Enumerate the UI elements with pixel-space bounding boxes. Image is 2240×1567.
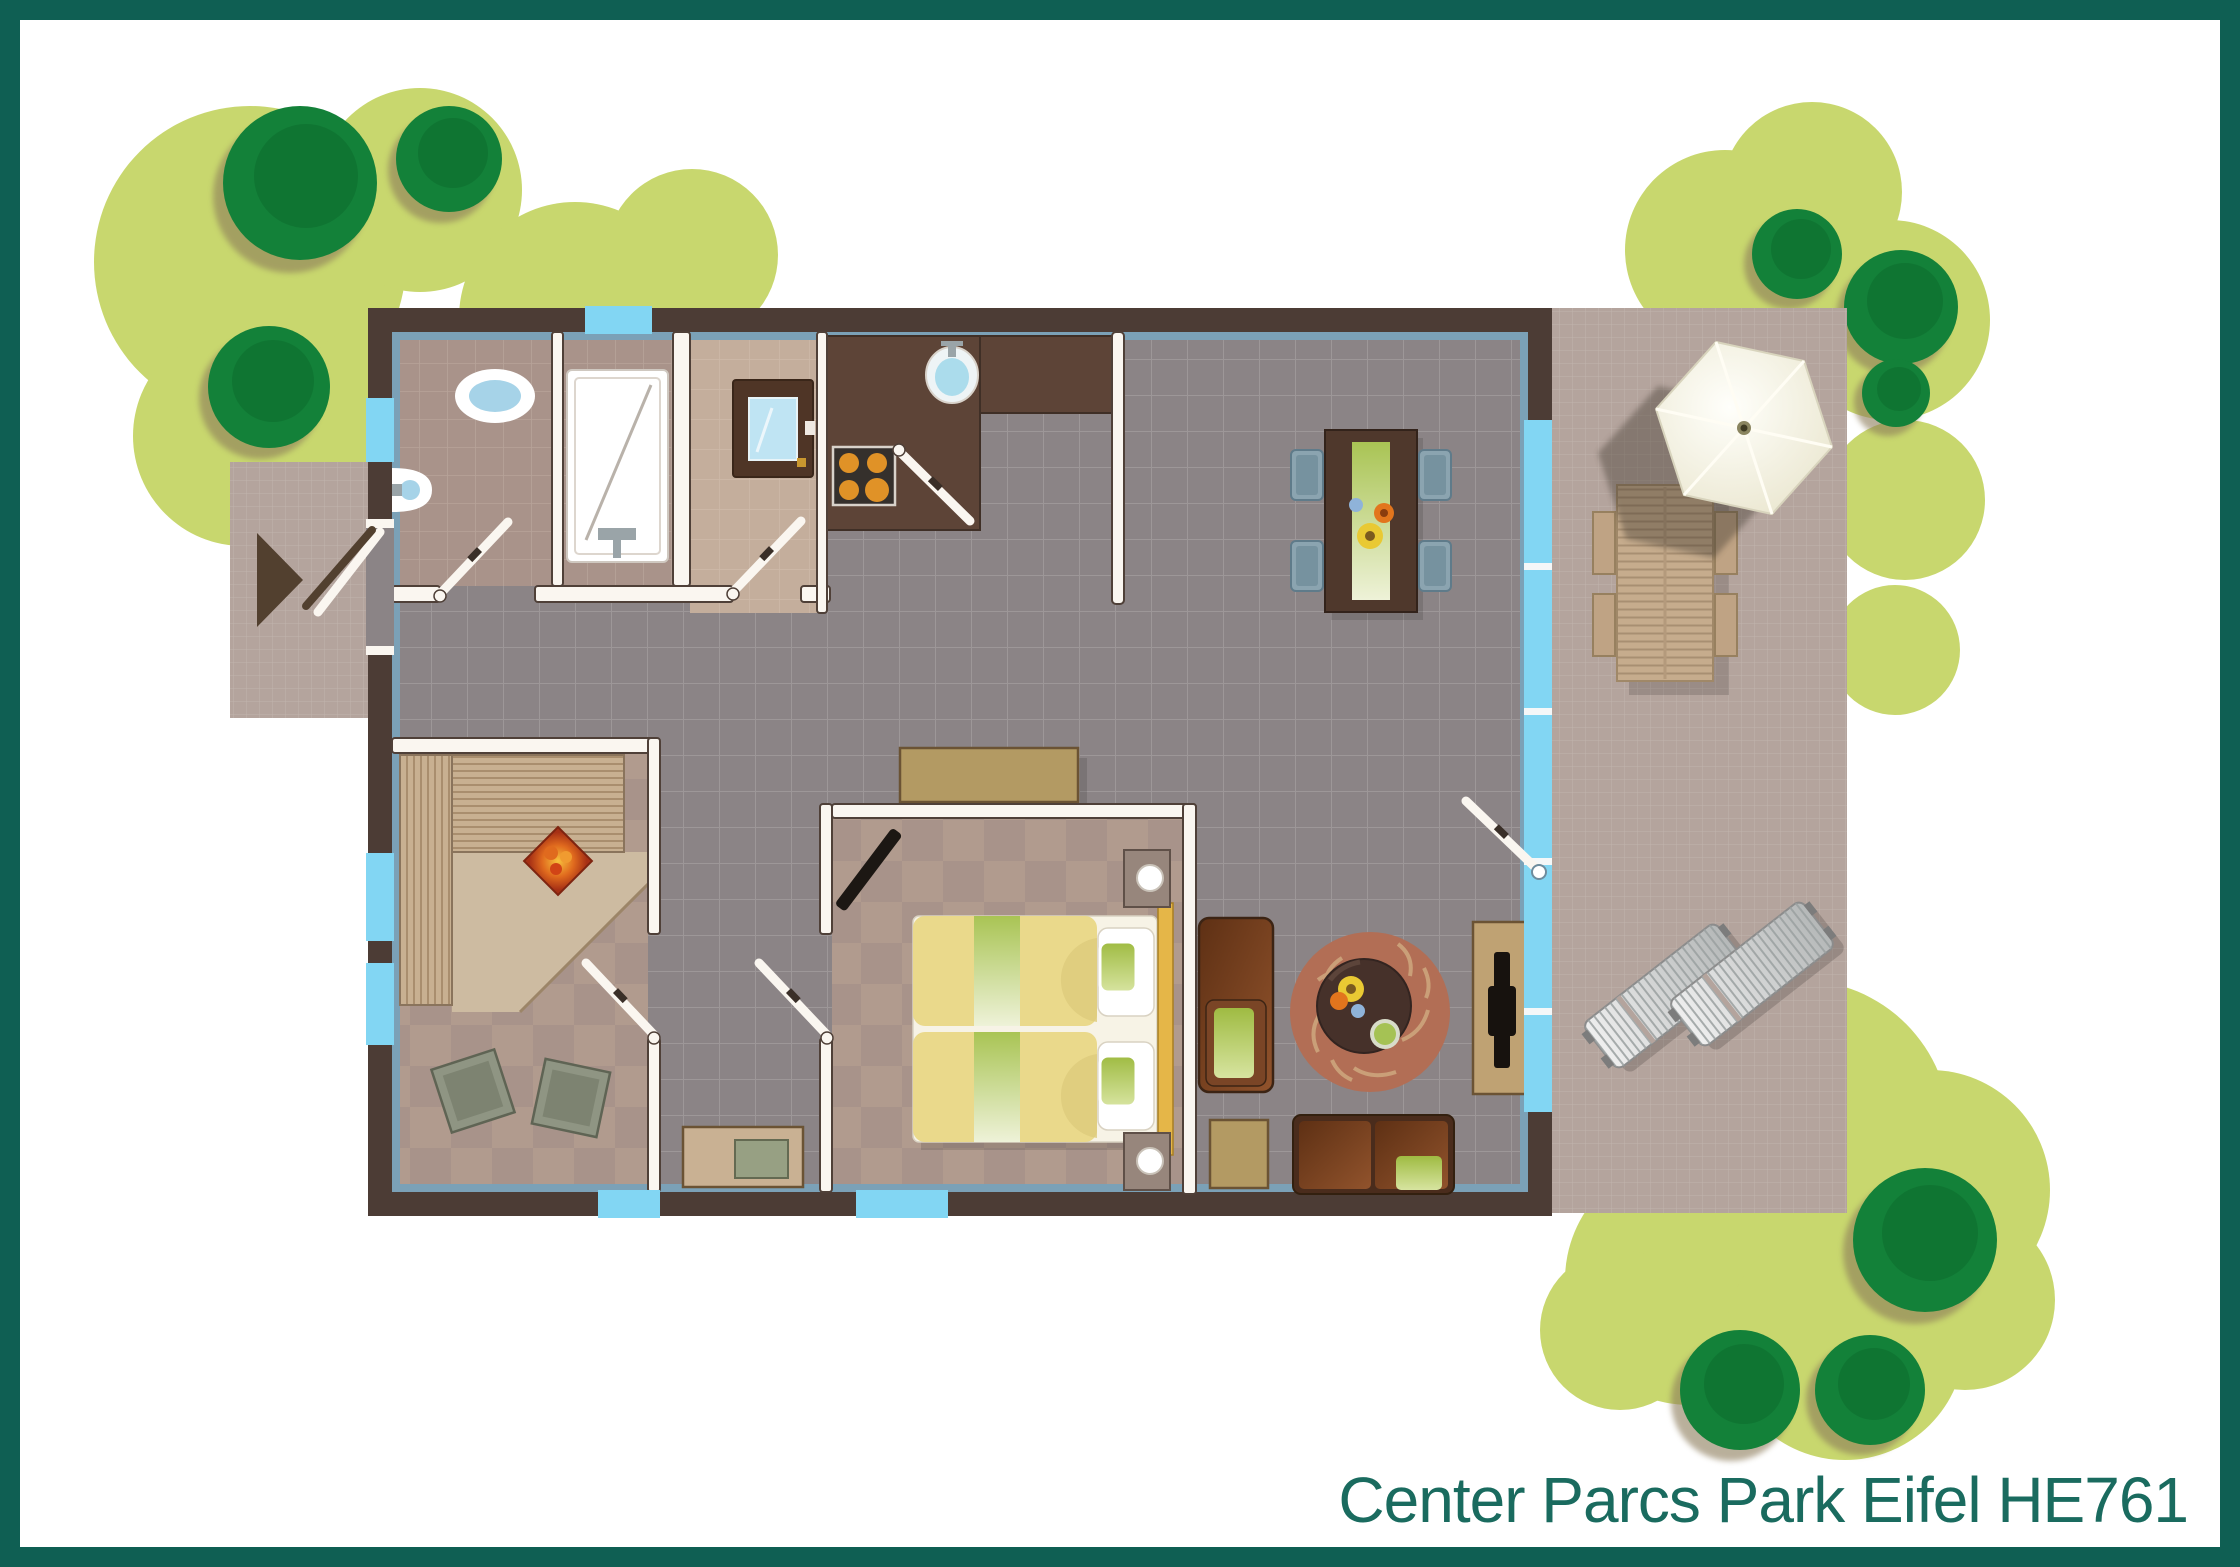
wall-toilet-shower bbox=[552, 332, 563, 586]
nightstand bbox=[1124, 850, 1170, 907]
wall-shower-utility bbox=[673, 332, 690, 586]
sauna-bench bbox=[452, 755, 624, 852]
wall-bath-south bbox=[392, 586, 440, 602]
plan-title: Center Parcs Park Eifel HE761 bbox=[1338, 1468, 2188, 1532]
floorplan-canvas bbox=[0, 0, 2240, 1567]
porch-floor bbox=[230, 462, 368, 718]
wall-corridor-right bbox=[820, 804, 832, 934]
bench-left bbox=[1593, 512, 1615, 574]
coffee-table bbox=[1317, 959, 1411, 1053]
wall-corridor-left bbox=[648, 738, 660, 934]
terrace bbox=[1552, 308, 1847, 1213]
bench-left bbox=[1593, 594, 1615, 656]
armchair bbox=[1199, 918, 1273, 1092]
pillow bbox=[1098, 1042, 1154, 1130]
toilet bbox=[455, 369, 535, 423]
window-south-2 bbox=[856, 1190, 948, 1218]
wall-bath-south bbox=[535, 586, 733, 602]
flower bbox=[1330, 992, 1348, 1010]
wall-corridor-right bbox=[820, 1038, 832, 1192]
house bbox=[306, 306, 1552, 1218]
dining-chair bbox=[1291, 450, 1323, 500]
window-north bbox=[585, 306, 652, 334]
shower-tray bbox=[567, 370, 668, 562]
bench-right bbox=[1715, 594, 1737, 656]
glass-door-appliance bbox=[733, 380, 815, 477]
pillow bbox=[1098, 928, 1154, 1016]
wall-bedroom-east bbox=[1183, 804, 1196, 1194]
dining-chair bbox=[1419, 541, 1451, 591]
sofa bbox=[1293, 1115, 1454, 1194]
pouf bbox=[532, 1059, 610, 1137]
stove bbox=[833, 447, 895, 505]
appliance-hinge bbox=[797, 458, 806, 467]
green-cushion bbox=[1396, 1156, 1442, 1190]
glass-wall bbox=[1524, 420, 1552, 1112]
entrance-porch bbox=[230, 462, 368, 718]
green-cushion bbox=[1214, 1008, 1254, 1078]
headboard bbox=[1158, 903, 1173, 1155]
wall-bedroom-north bbox=[832, 804, 1196, 818]
window-sauna-2 bbox=[366, 963, 394, 1045]
wall-corridor-left bbox=[648, 1038, 660, 1192]
bed-runner bbox=[974, 916, 1020, 1026]
lamp bbox=[1137, 865, 1163, 891]
bed-runner bbox=[974, 1032, 1020, 1142]
tv-cabinet bbox=[1473, 922, 1526, 1094]
burner bbox=[839, 480, 859, 500]
burner bbox=[839, 453, 859, 473]
wall-utility-kitchen bbox=[817, 332, 827, 613]
burner bbox=[867, 453, 887, 473]
terrace-door-handle bbox=[1532, 865, 1546, 879]
sauna-bench bbox=[400, 755, 452, 1005]
sideboard bbox=[900, 748, 1087, 812]
burner bbox=[865, 478, 889, 502]
dining-chair bbox=[1291, 541, 1323, 591]
nightstand bbox=[1124, 1133, 1170, 1190]
wall-kitchen-dining bbox=[1112, 332, 1124, 604]
window-south-1 bbox=[598, 1190, 660, 1218]
window-sauna-1 bbox=[366, 853, 394, 941]
side-table bbox=[1210, 1120, 1268, 1188]
flower bbox=[1351, 1004, 1365, 1018]
shower-fixture bbox=[598, 528, 636, 540]
dining-chair bbox=[1419, 450, 1451, 500]
double-bed bbox=[913, 903, 1173, 1155]
floorplan-page: Center Parcs Park Eifel HE761 bbox=[0, 0, 2240, 1567]
appliance-handle bbox=[805, 421, 815, 435]
window-toilet bbox=[366, 398, 394, 462]
lamp bbox=[1137, 1148, 1163, 1174]
wall-sauna-north bbox=[392, 738, 658, 753]
corridor-dresser bbox=[683, 1127, 803, 1187]
